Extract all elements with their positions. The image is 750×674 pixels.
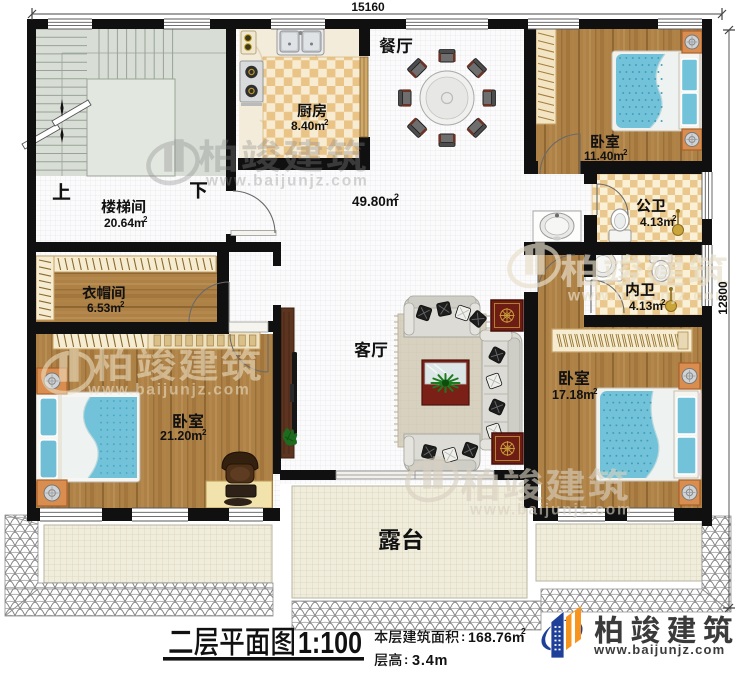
svg-text:3.4m: 3.4m xyxy=(412,653,448,669)
svg-text:2: 2 xyxy=(202,428,207,437)
svg-text::: : xyxy=(461,629,465,644)
svg-text:www.baijunjz.com: www.baijunjz.com xyxy=(87,382,251,399)
svg-text:www.baijunjz.com: www.baijunjz.com xyxy=(593,642,725,657)
svg-text:www.baijunjz.com: www.baijunjz.com xyxy=(469,502,633,519)
svg-text:2: 2 xyxy=(521,626,526,636)
svg-text:21.20m: 21.20m xyxy=(160,429,202,443)
svg-text:12800: 12800 xyxy=(716,281,730,315)
svg-text:2: 2 xyxy=(661,298,666,307)
svg-text:2: 2 xyxy=(120,300,125,309)
svg-text:1:100: 1:100 xyxy=(298,625,362,660)
svg-text:8.40m: 8.40m xyxy=(291,119,325,133)
svg-text:2: 2 xyxy=(623,148,628,157)
svg-text:www.baijunjz.com: www.baijunjz.com xyxy=(205,173,369,190)
svg-text:168.76m: 168.76m xyxy=(468,629,525,645)
svg-text:15160: 15160 xyxy=(351,0,385,14)
svg-text:2: 2 xyxy=(593,387,598,396)
svg-text:20.64m: 20.64m xyxy=(104,216,145,230)
svg-text:2: 2 xyxy=(394,192,399,202)
svg-text:4.13m: 4.13m xyxy=(629,299,663,313)
svg-text:4.13m: 4.13m xyxy=(640,215,674,229)
svg-text::: : xyxy=(404,652,408,667)
svg-text:11.40m: 11.40m xyxy=(584,149,624,163)
svg-text:2: 2 xyxy=(324,118,329,127)
svg-text:2: 2 xyxy=(143,215,148,224)
svg-text:6.53m: 6.53m xyxy=(87,301,121,315)
svg-text:17.18m: 17.18m xyxy=(552,388,594,402)
svg-text:2: 2 xyxy=(672,214,677,223)
svg-text:49.80m: 49.80m xyxy=(352,194,398,209)
